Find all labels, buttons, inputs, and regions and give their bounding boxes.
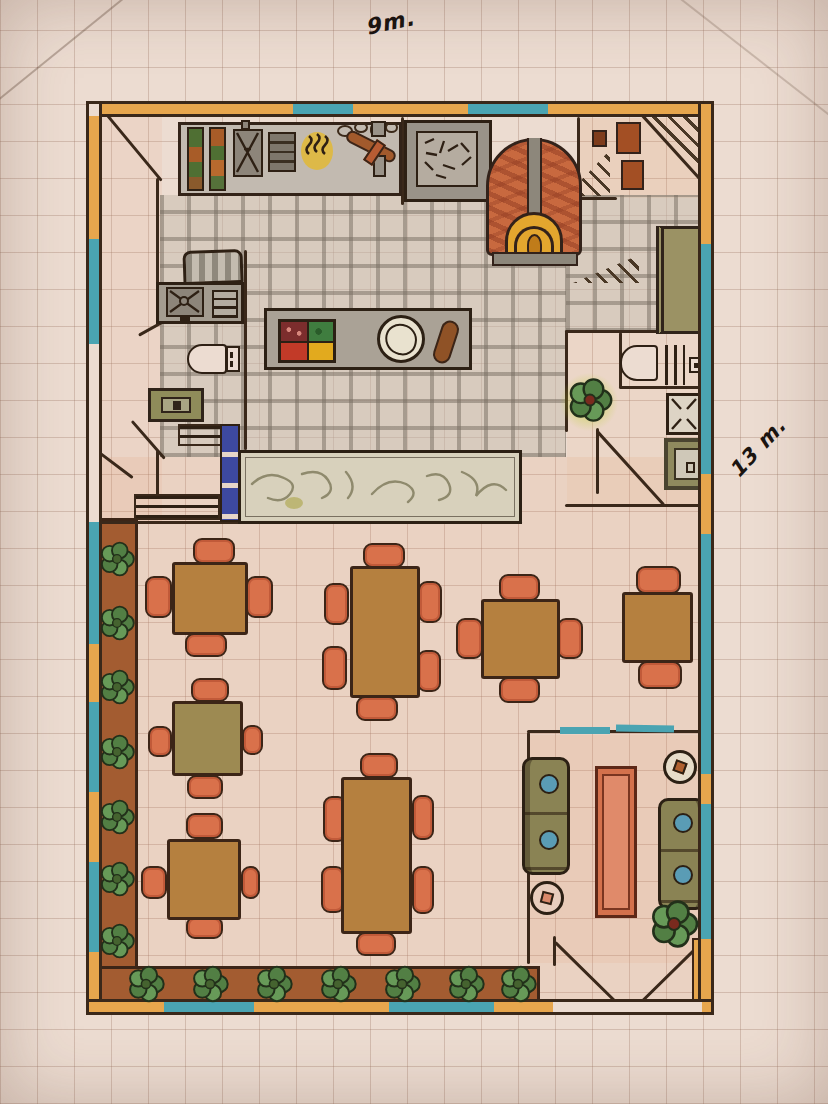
wc-wall [244, 250, 247, 450]
bar-counter [238, 450, 522, 524]
stove-top [416, 131, 478, 187]
wc-shower-mat [148, 388, 204, 422]
sofa-pillow [673, 813, 693, 833]
food-corn [309, 343, 333, 360]
dining-chair [242, 725, 263, 755]
side-table-base [540, 891, 555, 906]
side-table-round-b [530, 881, 564, 915]
wall-segment-orange [701, 104, 714, 244]
planter-flower [98, 604, 136, 646]
food-container [278, 319, 336, 363]
wall-segment-orange [353, 104, 468, 117]
restroom-toilet [620, 345, 658, 381]
wall-segment-teal [701, 244, 714, 474]
planter-flower [446, 964, 486, 1008]
dining-chair [145, 576, 172, 618]
dining-table-square-4top-b [481, 599, 560, 679]
restroom-bottom-wall [565, 504, 712, 507]
corridor-wall-lower [156, 450, 159, 497]
dining-table-square-4top-olive [172, 701, 243, 776]
dining-chair [187, 775, 223, 799]
planter-flower [98, 922, 136, 964]
food-tomato [281, 343, 309, 360]
exterior-wall-top [86, 101, 714, 117]
towel-radiator [665, 345, 685, 385]
dining-chair [186, 813, 223, 839]
dining-table-square-2top [622, 592, 693, 663]
dining-chair [193, 538, 235, 564]
storage-box-small [592, 130, 607, 147]
floor-plan [0, 0, 828, 1104]
dining-chair [499, 677, 540, 703]
wall-segment-orange [101, 104, 293, 117]
dining-chair [356, 932, 396, 956]
dining-chair [636, 566, 681, 594]
veg-prep-tray-2 [209, 127, 226, 191]
tank-detail [230, 361, 233, 367]
planter-flower [126, 964, 166, 1008]
dining-chair [148, 726, 172, 757]
stairs-lower [134, 494, 220, 520]
dining-chair [141, 866, 167, 899]
dining-chair [417, 650, 441, 692]
dining-table-rect-6top-a [350, 566, 420, 698]
planter-flower [98, 668, 136, 710]
dining-table-rect-6top-b [341, 777, 412, 934]
dining-chair [363, 543, 405, 568]
dining-chair [185, 633, 227, 657]
dining-table-square-4top-c [167, 839, 241, 920]
dough-plate-inner [382, 321, 420, 358]
dining-chair [360, 753, 398, 778]
wall-segment-teal [293, 104, 353, 117]
prep-sink-tap [241, 120, 250, 130]
bar-marble-veins [242, 454, 518, 520]
exterior-wall-right [698, 101, 714, 1015]
side-table-base [672, 759, 687, 774]
dining-chair [356, 696, 398, 721]
dough-plate [377, 315, 425, 363]
restroom-sink [666, 393, 702, 435]
dining-chair [324, 583, 349, 625]
planter-flower [98, 798, 136, 840]
food-berries [281, 322, 309, 343]
wall-segment-orange [701, 774, 714, 804]
dining-chair [412, 866, 434, 914]
dining-chair [412, 795, 434, 840]
planter-flower [254, 964, 294, 1008]
wall-segment-orange [89, 116, 102, 239]
dishwasher [166, 287, 204, 317]
counter-shelf-stack [268, 132, 296, 172]
oven-base [492, 252, 578, 266]
veg-prep-tray-1 [187, 127, 204, 191]
dining-chair [638, 661, 682, 689]
planter-flower [498, 964, 538, 1008]
bar-stain [285, 497, 303, 509]
wall-segment-teal [468, 104, 548, 117]
coffee-table-inner [602, 774, 630, 910]
stairs-blue-runner [220, 424, 240, 522]
stove [404, 120, 492, 202]
planter-flower [318, 964, 358, 1008]
dining-table-square-4top-a [172, 562, 248, 635]
planter-flower [98, 860, 136, 902]
wall-segment-teal [701, 534, 714, 774]
small-pot [371, 121, 386, 137]
planter-flower [382, 964, 422, 1008]
wc-toilet-bowl [187, 344, 227, 374]
dining-chair [499, 574, 540, 601]
wall-segment-orange [701, 474, 714, 534]
dining-chair [191, 678, 229, 702]
planter-flower [190, 964, 230, 1008]
dining-chair [557, 618, 583, 659]
wall-segment-teal [89, 239, 102, 344]
dining-chair [241, 866, 260, 899]
wall-segment-orange [702, 1002, 714, 1015]
wall-segment-orange [548, 104, 711, 117]
restroom-plant [566, 376, 614, 428]
mat-drain [173, 401, 181, 410]
graph-paper-sheet: 9m. 13 m. [0, 0, 828, 1104]
dining-chair [456, 618, 483, 659]
sofa-pillow [539, 774, 559, 794]
shelf-unit [212, 290, 238, 318]
dining-chair [246, 576, 273, 618]
storage-box-a [616, 122, 641, 154]
dining-chair [418, 581, 442, 623]
steaming-pot [299, 126, 335, 172]
storage-room-wall-stub [577, 197, 617, 200]
wall-segment-teal [701, 804, 714, 939]
lounge-flower [648, 898, 700, 954]
prep-sink [233, 129, 263, 177]
dining-chair [322, 646, 347, 690]
planter-flower [98, 733, 136, 775]
lounge-window-strip-b [616, 724, 674, 732]
dough-ball [385, 122, 398, 133]
corridor-wall-upper [156, 178, 159, 284]
stairs-upper [178, 424, 222, 446]
coffee-table [595, 766, 637, 918]
wc-toilet-tank [226, 346, 240, 372]
sofa-left [522, 757, 570, 875]
tank-detail [230, 352, 233, 358]
storage-box-b [621, 160, 644, 190]
roll-shutter-fridge [182, 249, 243, 285]
sofa-pillow [673, 865, 693, 885]
planter-flower [98, 540, 136, 582]
food-greens [309, 322, 333, 343]
shower-drain [686, 462, 695, 473]
restroom-door-jamb [596, 428, 599, 494]
dishwasher-handle [180, 315, 190, 322]
sofa-pillow [539, 830, 559, 850]
lounge-window-strip-a [560, 727, 610, 734]
side-table-round-a [663, 750, 697, 784]
